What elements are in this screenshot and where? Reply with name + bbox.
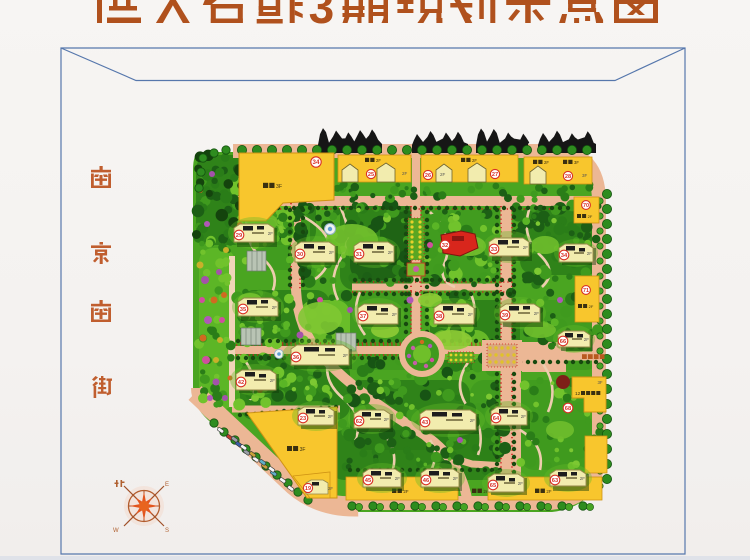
svg-text:2F: 2F: [329, 250, 335, 255]
svg-text:2F: 2F: [580, 476, 586, 481]
svg-text:2F: 2F: [584, 337, 590, 342]
svg-text:2F: 2F: [402, 171, 408, 176]
svg-text:2F: 2F: [544, 160, 549, 165]
svg-text:E: E: [165, 482, 169, 488]
svg-text:39: 39: [502, 313, 509, 319]
svg-text:3F: 3F: [574, 160, 579, 165]
svg-text:2F: 2F: [268, 231, 274, 236]
svg-text:2F: 2F: [521, 414, 527, 419]
svg-text:3F: 3F: [582, 173, 588, 178]
svg-text:3F: 3F: [276, 184, 282, 190]
svg-text:S: S: [165, 528, 169, 534]
svg-text:2F: 2F: [328, 414, 334, 419]
svg-text:2F: 2F: [272, 305, 278, 310]
svg-text:2F: 2F: [518, 481, 524, 486]
svg-text:45: 45: [365, 478, 372, 484]
svg-text:12: 12: [575, 391, 581, 397]
svg-text:2F: 2F: [587, 251, 593, 256]
svg-text:37: 37: [360, 314, 366, 320]
svg-text:2F: 2F: [392, 312, 398, 317]
svg-text:W: W: [113, 528, 119, 534]
svg-text:30: 30: [297, 252, 303, 258]
svg-text:23: 23: [300, 416, 307, 422]
svg-text:2F: 2F: [403, 489, 408, 494]
svg-text:2F: 2F: [328, 486, 333, 491]
svg-text:2F: 2F: [472, 158, 477, 163]
svg-text:2F: 2F: [270, 378, 276, 383]
svg-text:2F: 2F: [453, 476, 459, 481]
svg-text:35: 35: [240, 307, 247, 313]
svg-text:2F: 2F: [468, 312, 474, 317]
svg-text:2F: 2F: [523, 245, 529, 250]
svg-text:33: 33: [491, 247, 498, 253]
svg-text:2F: 2F: [440, 172, 446, 177]
svg-text:25: 25: [368, 172, 374, 178]
svg-text:2F: 2F: [589, 304, 594, 309]
svg-text:31: 31: [356, 252, 363, 258]
svg-text:29: 29: [236, 233, 243, 239]
svg-text:36: 36: [293, 355, 300, 361]
svg-text:28: 28: [565, 174, 571, 180]
svg-text:38: 38: [436, 314, 443, 320]
svg-text:71: 71: [583, 288, 589, 294]
svg-text:19: 19: [305, 486, 311, 492]
svg-text:43: 43: [422, 420, 429, 426]
svg-text:2F: 2F: [470, 418, 476, 423]
svg-text:46: 46: [423, 478, 430, 484]
svg-text:3: 3: [309, 0, 335, 33]
svg-text:3F: 3F: [597, 380, 602, 385]
svg-text:34: 34: [313, 159, 320, 166]
svg-text:2F: 2F: [588, 214, 593, 219]
svg-text:64: 64: [493, 416, 500, 422]
svg-text:2F: 2F: [546, 489, 551, 494]
svg-text:2F: 2F: [384, 417, 390, 422]
svg-text:65: 65: [490, 483, 497, 489]
svg-text:2F: 2F: [534, 311, 540, 316]
svg-text:34: 34: [561, 253, 568, 259]
svg-text:2F: 2F: [395, 476, 401, 481]
svg-text:27: 27: [492, 172, 498, 178]
svg-text:2F: 2F: [376, 158, 381, 163]
svg-text:70: 70: [583, 203, 589, 209]
svg-text:66: 66: [560, 339, 567, 345]
svg-text:3F: 3F: [300, 447, 306, 453]
svg-text:2F: 2F: [388, 250, 394, 255]
svg-text:26: 26: [425, 173, 431, 179]
svg-text:2F: 2F: [343, 353, 349, 358]
svg-text:68: 68: [565, 406, 572, 412]
svg-text:63: 63: [552, 478, 559, 484]
svg-text:42: 42: [238, 380, 244, 386]
svg-text:62: 62: [356, 419, 362, 425]
svg-text:32: 32: [442, 243, 448, 249]
